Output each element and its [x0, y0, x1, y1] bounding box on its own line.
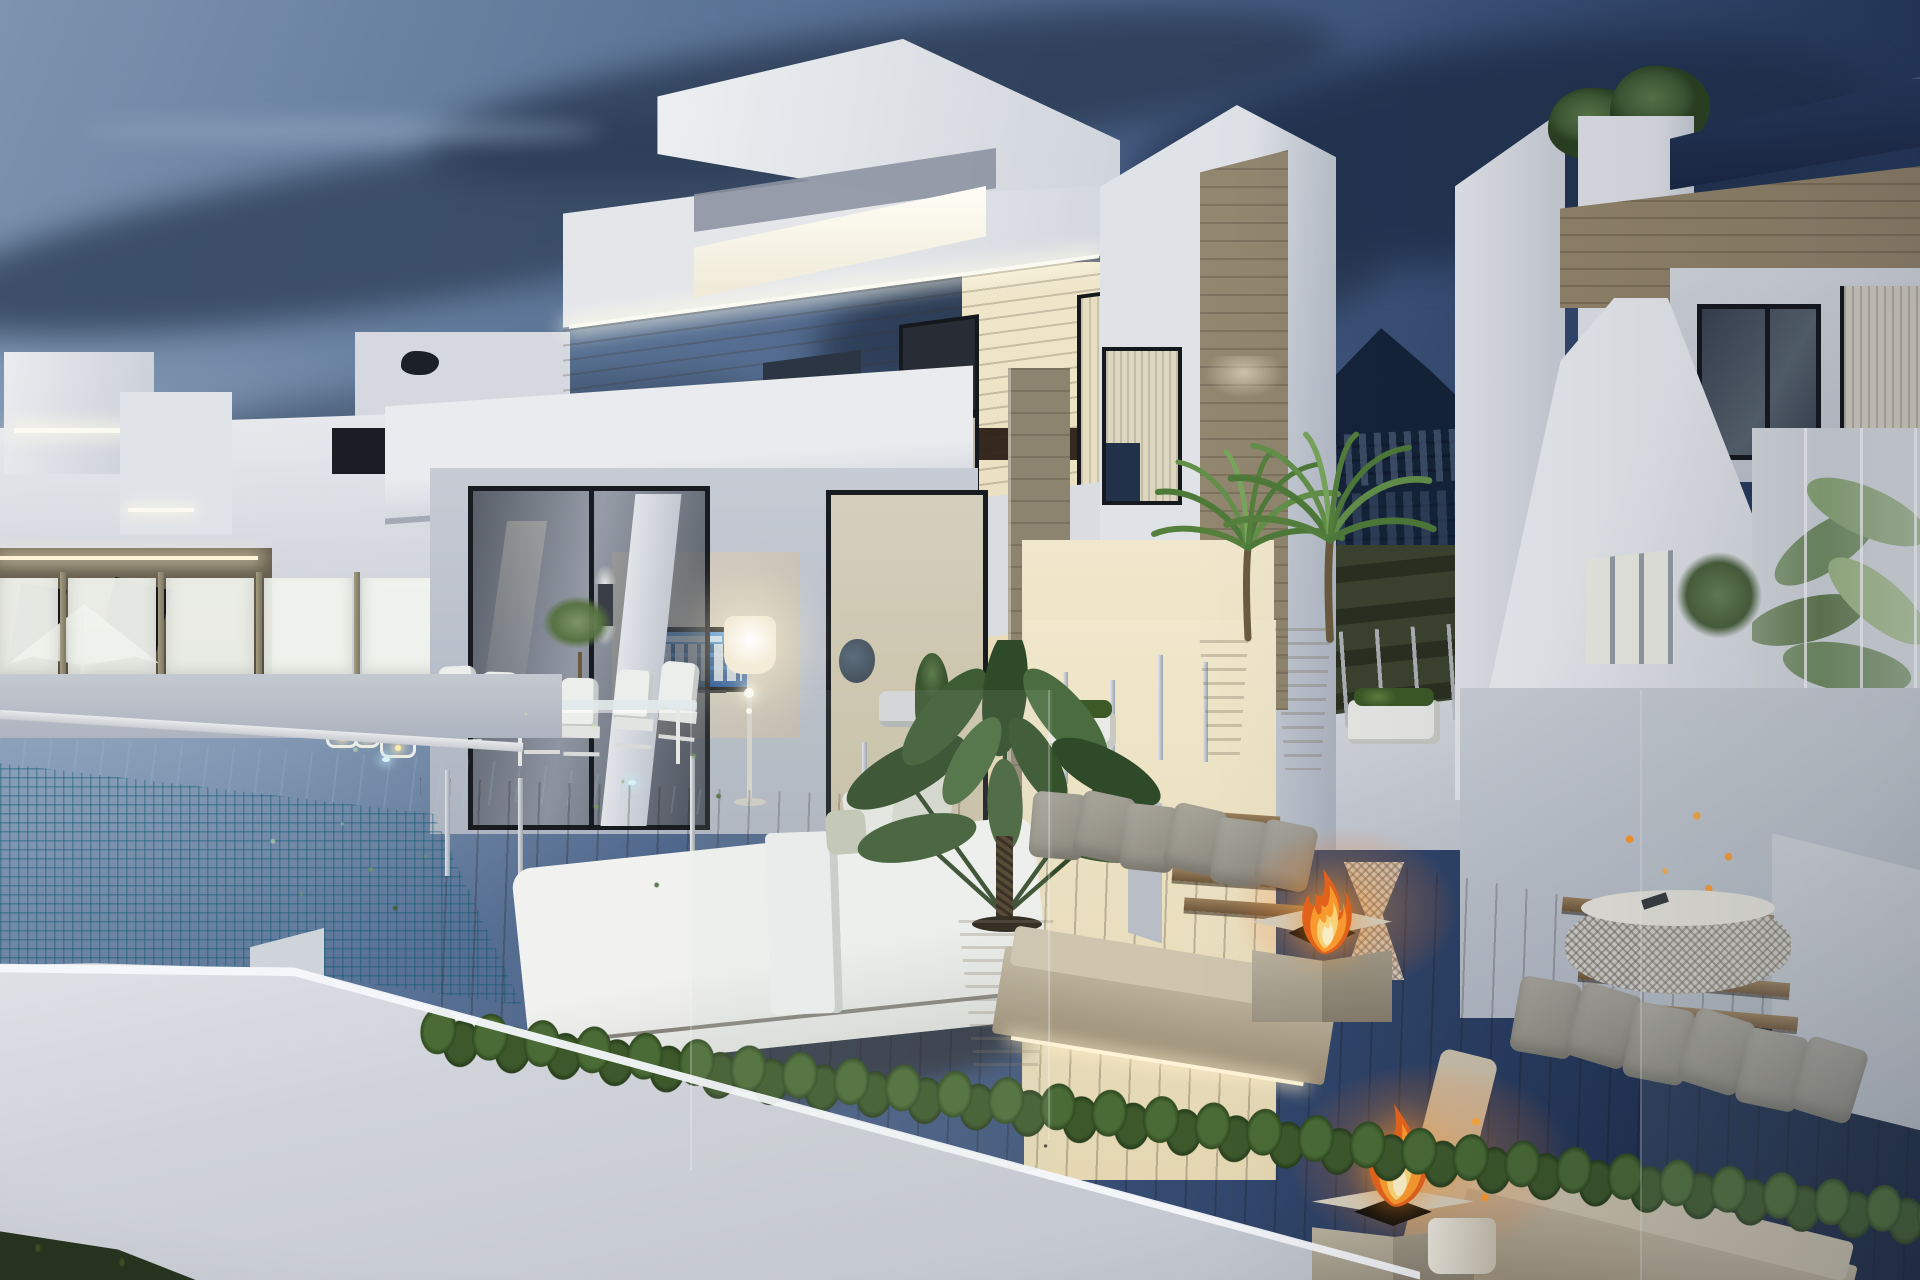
frosted-window-trio: [1586, 550, 1674, 664]
cloud-wisp: [80, 118, 600, 144]
balustrade-post: [256, 572, 262, 690]
glass-balcony-with-plants: [1752, 428, 1920, 732]
downlight-glow: [1200, 356, 1288, 412]
orange-tree-pot: [1428, 1218, 1496, 1274]
balustrade-post: [60, 572, 66, 690]
glass-panel-edge: [1804, 428, 1807, 732]
villa-dusk-render: Twilight exterior rendering of a modern …: [0, 0, 1920, 1280]
glass-panel-edge: [1860, 428, 1863, 732]
glass-panel: [0, 578, 58, 682]
white-planter-box: [1348, 700, 1440, 744]
led-strip: [0, 556, 258, 560]
balcony-glass: [1752, 428, 1920, 732]
led-strip: [128, 508, 194, 512]
glass-panel: [264, 578, 352, 682]
balustrade-post: [158, 572, 164, 690]
fire-flame: [1288, 862, 1358, 960]
floor-lamp-shade: [724, 616, 776, 674]
roof-shrub-silhouette: [401, 351, 439, 375]
foreground-glass-panel: [1640, 690, 1920, 1280]
plant-behind-glass: [1676, 552, 1762, 648]
potted-palm: [1220, 430, 1440, 650]
foreground-glass-panel: [690, 690, 1052, 1170]
glass-panel: [166, 578, 254, 682]
glass-panel-edge: [1914, 428, 1917, 732]
glass-panel: [68, 578, 156, 682]
left-villa-roof-box: [120, 392, 232, 534]
balustrade-post: [354, 572, 360, 690]
boxwood-hedge-ball: [228, 792, 432, 968]
glass-panel-edge: [1048, 690, 1050, 1140]
